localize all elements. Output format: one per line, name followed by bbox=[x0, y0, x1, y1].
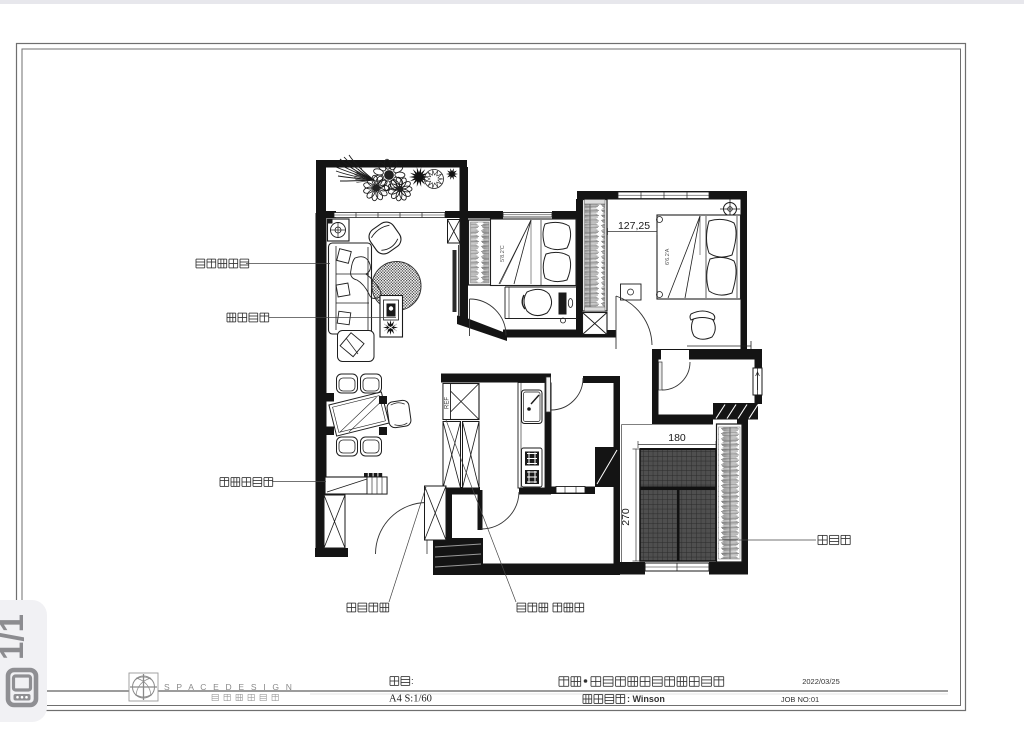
svg-text:A4 S:1/60: A4 S:1/60 bbox=[389, 694, 432, 705]
svg-text:180: 180 bbox=[668, 432, 686, 444]
svg-text::: : bbox=[411, 676, 414, 687]
svg-text:270: 270 bbox=[620, 508, 632, 526]
svg-text:127,25: 127,25 bbox=[618, 220, 650, 232]
svg-text:REF: REF bbox=[445, 397, 451, 409]
svg-text:S P A C E D E S I G N: S P A C E D E S I G N bbox=[164, 682, 294, 692]
svg-text:2022/03/25: 2022/03/25 bbox=[802, 677, 840, 686]
svg-text:1/1: 1/1 bbox=[0, 614, 30, 660]
svg-text:6'6.2'A: 6'6.2'A bbox=[665, 248, 671, 265]
svg-text:5'8.2'C: 5'8.2'C bbox=[500, 245, 506, 262]
svg-text:JOB NO:01: JOB NO:01 bbox=[781, 695, 819, 704]
svg-text:: Winson: : Winson bbox=[627, 694, 665, 704]
